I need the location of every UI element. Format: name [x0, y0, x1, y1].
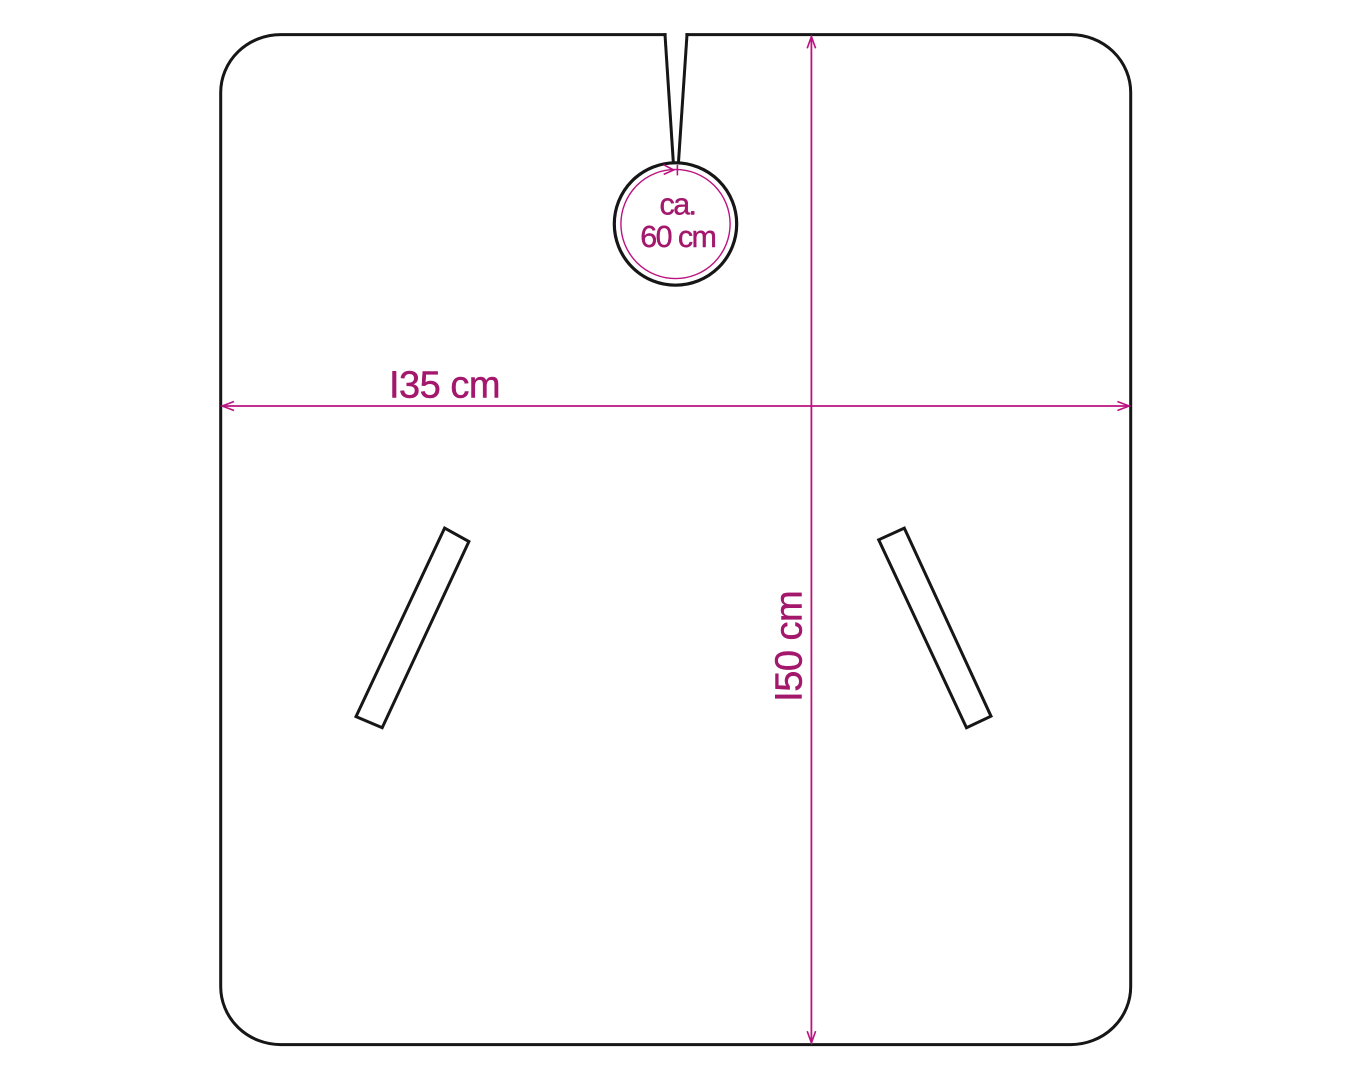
- svg-text:ca.: ca.: [660, 188, 696, 222]
- svg-text:I35 cm: I35 cm: [389, 365, 500, 407]
- svg-text:60 cm: 60 cm: [640, 220, 715, 254]
- svg-text:I50 cm: I50 cm: [769, 591, 811, 702]
